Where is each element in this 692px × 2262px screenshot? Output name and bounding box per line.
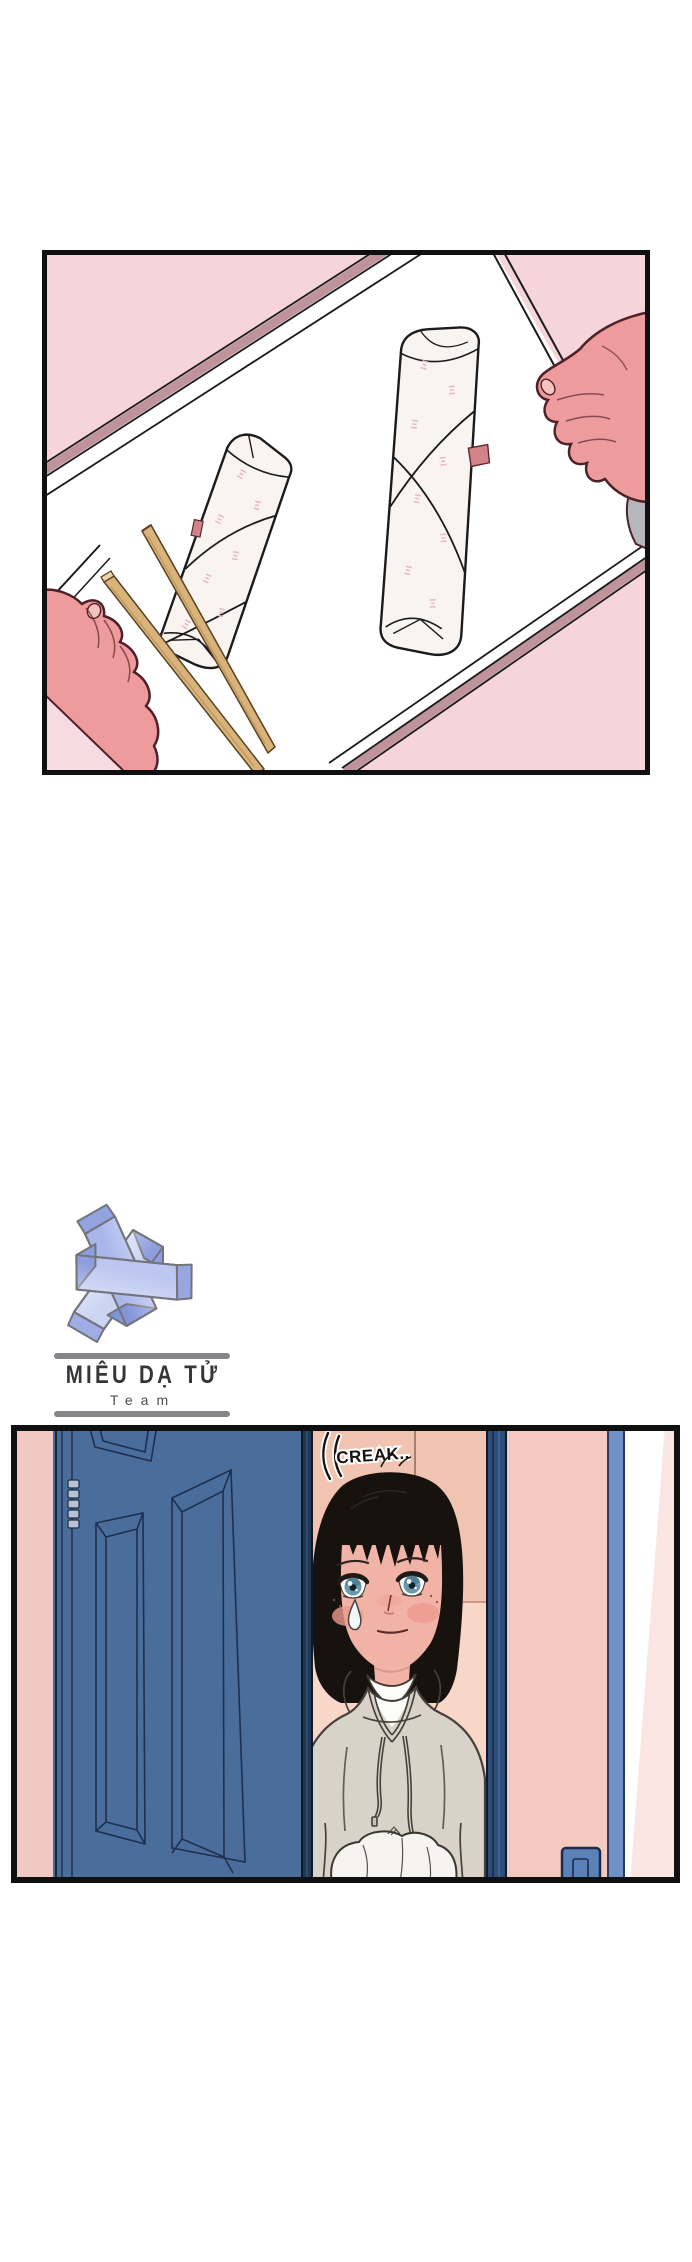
team-subtitle: Team: [23, 1392, 263, 1408]
light-strip: [625, 1425, 680, 1883]
panel-door-girl: CREAK..: [11, 1425, 680, 1883]
wall-trim-band: [608, 1425, 625, 1883]
right-wall: [507, 1425, 608, 1883]
team-name: MIÊU DẠ TỬ: [45, 1361, 242, 1390]
door: [53, 1425, 312, 1883]
panel-door-girl-art: CREAK..: [11, 1425, 680, 1883]
door-frame-right: [487, 1425, 507, 1883]
team-logo-icon: [40, 1200, 200, 1350]
logo-divider-bottom: [54, 1411, 230, 1417]
door-hinge: [68, 1480, 79, 1528]
left-wall: [11, 1425, 53, 1883]
comic-page: MIÊU DẠ TỬ Team CREAK..: [0, 0, 692, 2262]
panel-food-tray-art: [42, 250, 650, 775]
panel-food-tray: [42, 250, 650, 775]
team-logo-block: MIÊU DẠ TỬ Team: [0, 1195, 280, 1430]
logo-divider-top: [54, 1353, 230, 1359]
